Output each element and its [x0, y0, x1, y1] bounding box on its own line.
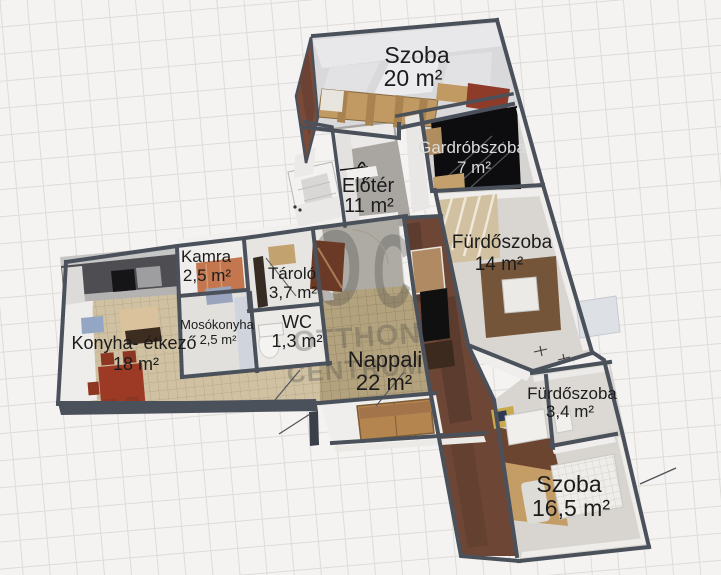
svg-text:Nappali: Nappali	[348, 347, 423, 372]
svg-text:14 m²: 14 m²	[475, 254, 524, 275]
svg-text:22 m²: 22 m²	[356, 370, 412, 395]
svg-text:7 m²: 7 m²	[457, 158, 491, 177]
svg-text:3,4 m²: 3,4 m²	[546, 402, 595, 421]
svg-text:WC: WC	[282, 312, 312, 332]
svg-text:3,7 m²: 3,7 m²	[269, 283, 318, 302]
svg-text:18 m²: 18 m²	[113, 354, 159, 374]
svg-text:Fürdőszoba: Fürdőszoba	[452, 232, 553, 253]
svg-text:16,5 m²: 16,5 m²	[532, 495, 610, 521]
svg-text:11 m²: 11 m²	[344, 195, 394, 217]
svg-text:2,5 m²: 2,5 m²	[183, 266, 232, 285]
svg-text:Kamra: Kamra	[181, 247, 232, 266]
svg-text:Konyha- étkező: Konyha- étkező	[71, 333, 196, 353]
svg-text:Fürdőszoba: Fürdőszoba	[527, 384, 617, 403]
svg-text:Szoba: Szoba	[536, 471, 601, 497]
svg-text:2,5 m²: 2,5 m²	[200, 332, 238, 347]
svg-text:Tároló: Tároló	[268, 264, 316, 283]
svg-text:Gardróbszoba: Gardróbszoba	[418, 138, 526, 157]
svg-text:1,3 m²: 1,3 m²	[271, 331, 322, 351]
svg-text:Előtér: Előtér	[342, 175, 395, 197]
svg-text:20 m²: 20 m²	[384, 65, 443, 91]
svg-text:Mosókonyha: Mosókonyha	[180, 317, 254, 332]
